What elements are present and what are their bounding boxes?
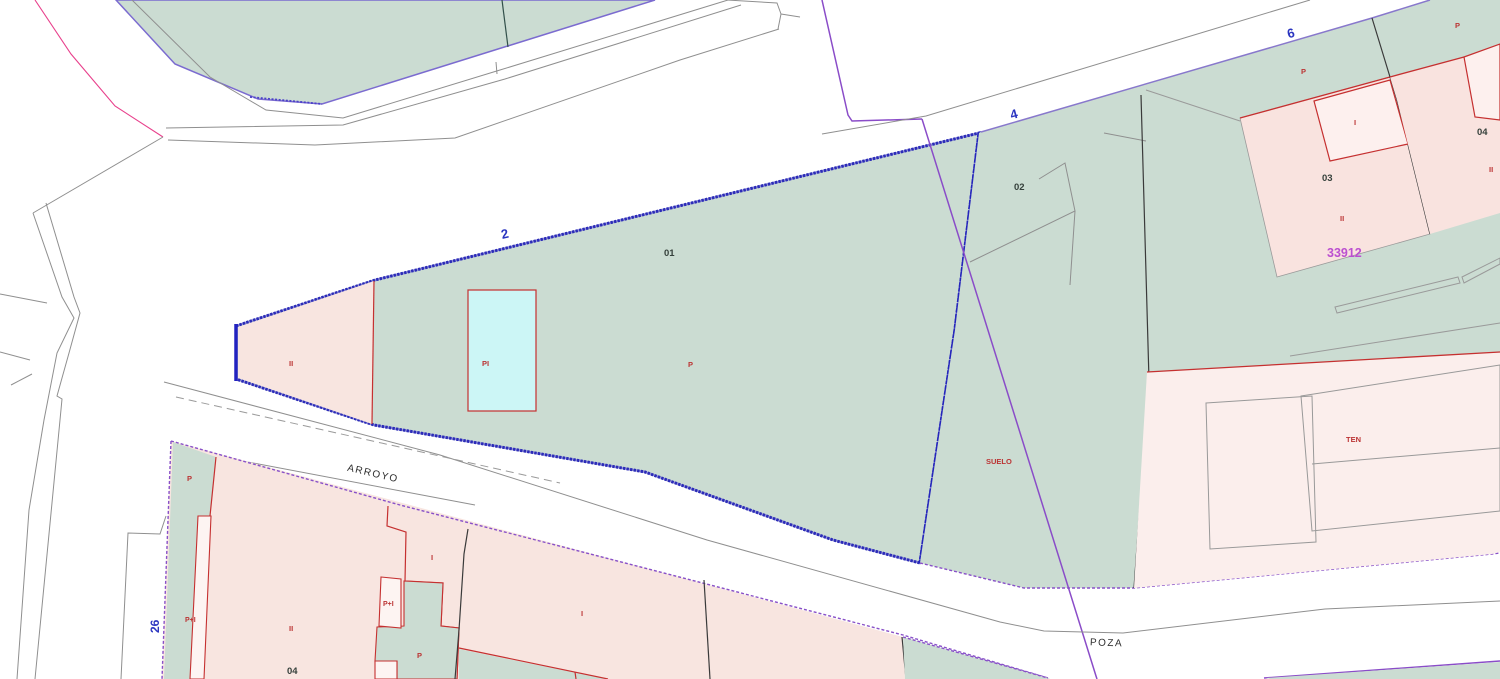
svg-text:P: P (1455, 21, 1460, 30)
svg-text:I: I (581, 609, 583, 618)
svg-text:POZA: POZA (1090, 637, 1124, 649)
svg-text:02: 02 (1014, 182, 1025, 193)
svg-text:26: 26 (148, 619, 162, 633)
svg-text:04: 04 (1477, 127, 1488, 138)
svg-text:II: II (289, 624, 293, 633)
svg-text:P: P (1301, 67, 1306, 76)
svg-text:P: P (688, 360, 693, 369)
svg-text:II: II (289, 359, 293, 368)
svg-text:TEN: TEN (1346, 435, 1361, 444)
svg-text:I: I (431, 553, 433, 562)
svg-text:II: II (1489, 165, 1493, 174)
svg-text:II: II (1340, 214, 1344, 223)
svg-text:P+I: P+I (383, 601, 394, 608)
svg-text:SUELO: SUELO (986, 457, 1012, 466)
svg-text:P: P (187, 474, 192, 483)
svg-text:03: 03 (1322, 173, 1333, 184)
svg-text:PI: PI (482, 359, 489, 368)
svg-text:01: 01 (664, 248, 675, 259)
svg-text:P: P (417, 651, 422, 660)
svg-text:P+I: P+I (185, 617, 196, 624)
svg-text:04: 04 (287, 666, 298, 677)
svg-text:I: I (1354, 118, 1356, 127)
svg-text:33912: 33912 (1327, 246, 1362, 260)
